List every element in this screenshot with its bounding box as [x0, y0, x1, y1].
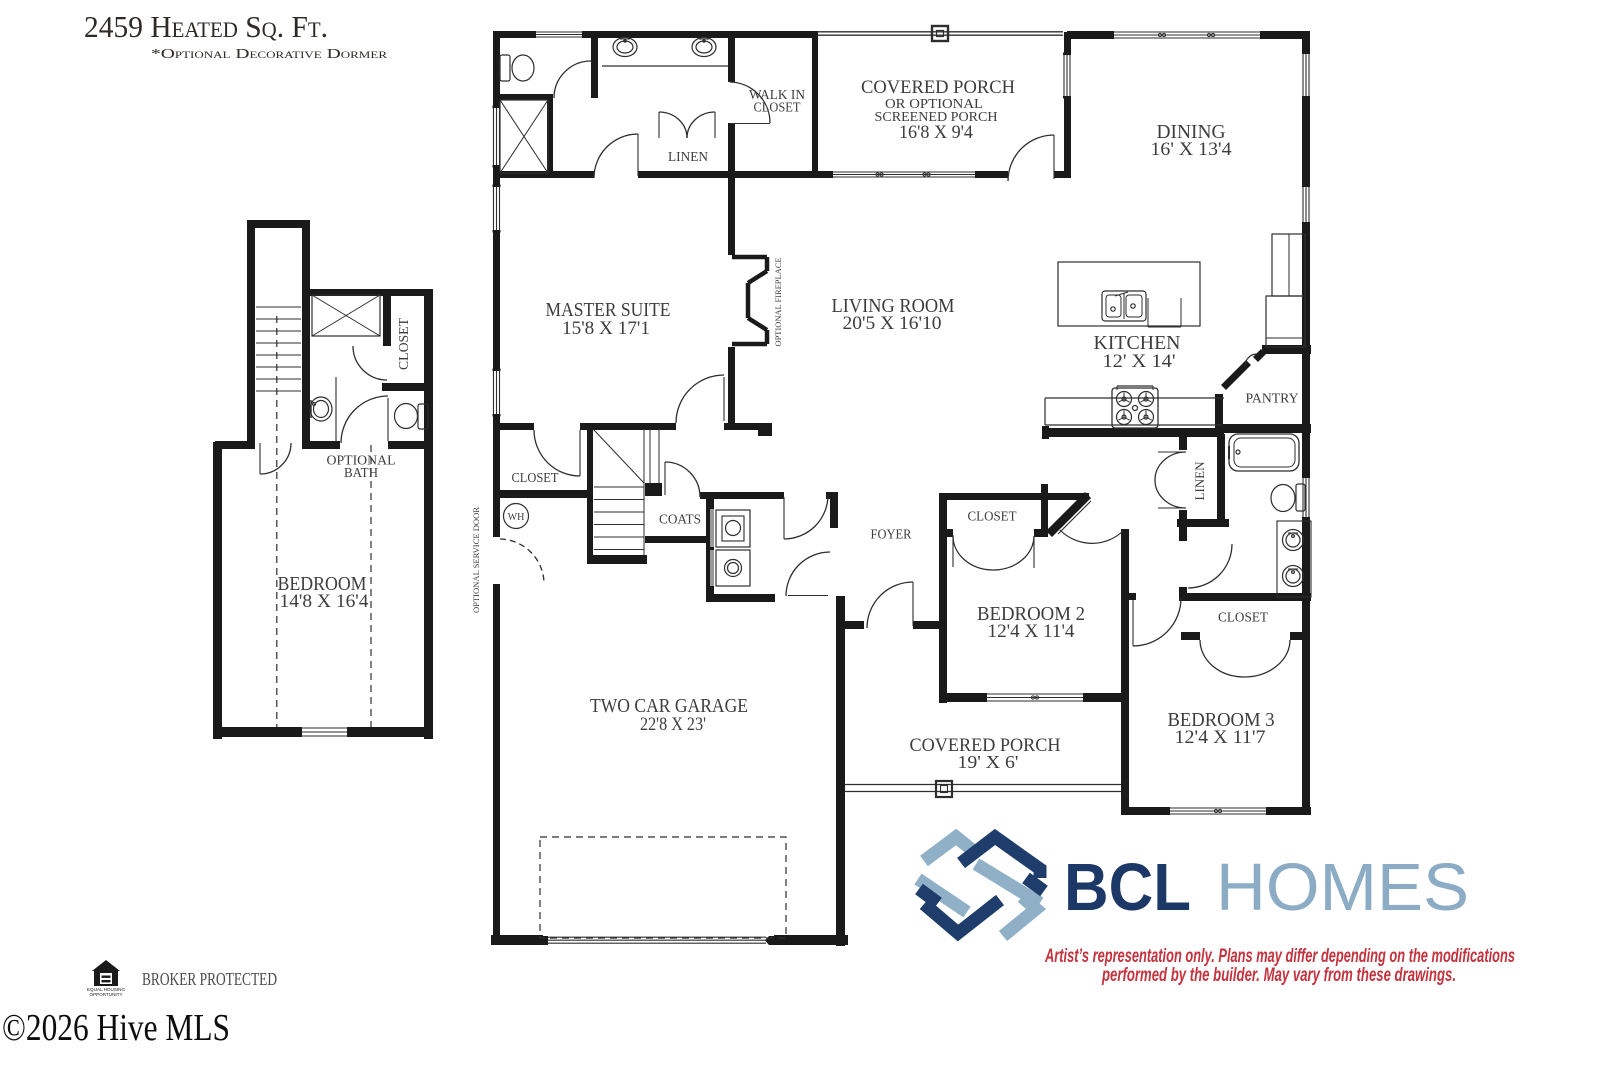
svg-text:2459 Heated Sq. Ft.: 2459 Heated Sq. Ft. [84, 9, 328, 44]
svg-text:BCL: BCL [1064, 850, 1191, 925]
svg-text:15'8 X 17'1: 15'8 X 17'1 [562, 318, 650, 339]
svg-text:*Optional Decorative Dormer: *Optional Decorative Dormer [151, 46, 387, 61]
svg-text:performed by the builder. May: performed by the builder. May vary from … [1101, 964, 1456, 986]
svg-text:FOYER: FOYER [871, 528, 913, 543]
svg-text:14'8 X 16'4: 14'8 X 16'4 [280, 591, 370, 612]
svg-text:BATH: BATH [344, 465, 378, 480]
svg-text:PANTRY: PANTRY [1246, 392, 1299, 407]
svg-text:OPTIONAL FIREPLACE: OPTIONAL FIREPLACE [773, 258, 783, 347]
svg-text:CLOSET: CLOSET [512, 471, 559, 486]
svg-text:OPTIONAL SERVICE DOOR: OPTIONAL SERVICE DOOR [471, 507, 481, 613]
svg-text:12'4 X 11'4: 12'4 X 11'4 [988, 621, 1075, 642]
svg-text:22'8 X 23': 22'8 X 23' [640, 714, 706, 735]
svg-text:CLOSET: CLOSET [754, 101, 801, 116]
svg-text:©2026 Hive MLS: ©2026 Hive MLS [2, 1007, 230, 1049]
svg-text:WH: WH [508, 512, 525, 523]
svg-text:COVERED PORCH: COVERED PORCH [861, 77, 1015, 98]
svg-text:CLOSET: CLOSET [396, 317, 411, 370]
svg-text:LINEN: LINEN [1193, 462, 1207, 501]
svg-text:HOMES: HOMES [1216, 850, 1469, 925]
svg-text:16' X 13'4: 16' X 13'4 [1151, 139, 1233, 160]
svg-text:LINEN: LINEN [668, 150, 708, 165]
svg-text:CLOSET: CLOSET [1218, 611, 1268, 626]
svg-text:BROKER PROTECTED: BROKER PROTECTED [142, 969, 277, 989]
svg-text:OPPORTUNITY: OPPORTUNITY [89, 992, 122, 997]
svg-text:CLOSET: CLOSET [968, 510, 1017, 525]
svg-text:12'4 X 11'7: 12'4 X 11'7 [1175, 727, 1266, 748]
svg-text:19' X 6': 19' X 6' [958, 752, 1019, 772]
svg-text:20'5 X 16'10: 20'5 X 16'10 [843, 313, 942, 334]
svg-text:16'8 X 9'4: 16'8 X 9'4 [899, 122, 973, 143]
svg-text:12' X 14': 12' X 14' [1103, 351, 1176, 372]
svg-text:COATS: COATS [659, 513, 701, 528]
